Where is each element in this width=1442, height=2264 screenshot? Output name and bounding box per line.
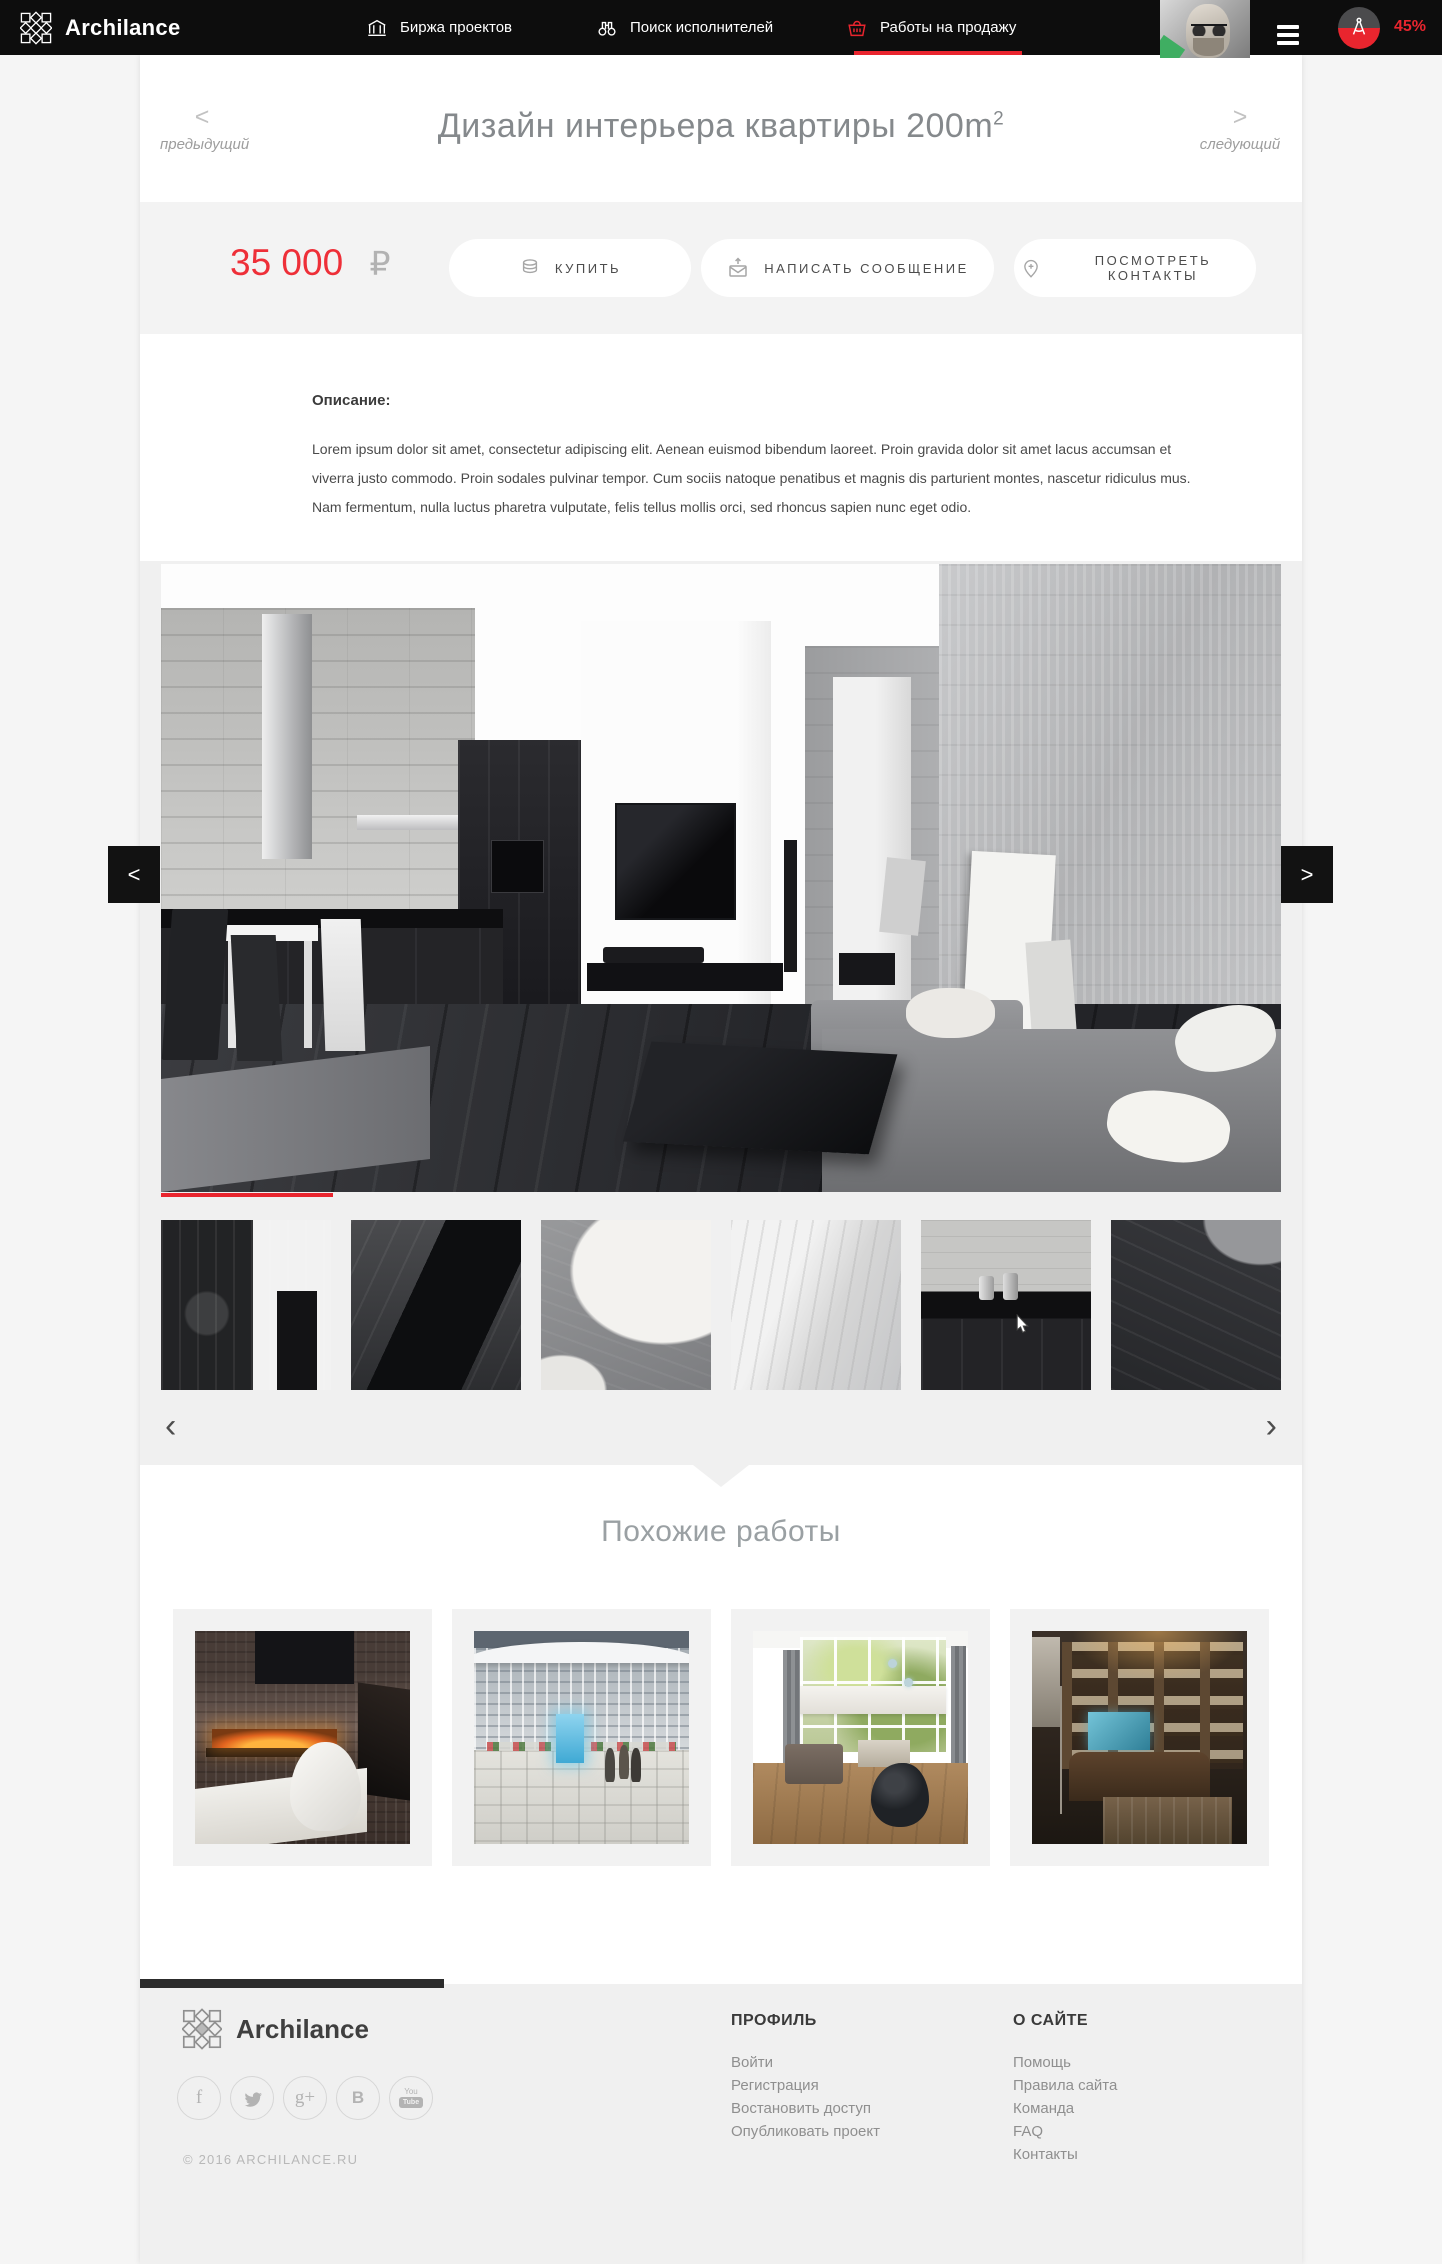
- copyright: © 2016 ARCHILANCE.RU: [183, 2152, 358, 2167]
- basket-icon: [846, 17, 868, 39]
- photo-hall-sideboard: [839, 953, 895, 984]
- page-title: Дизайн интерьера квартиры 200m2: [140, 55, 1302, 146]
- send-mail-icon: [726, 256, 750, 280]
- section-notch: [693, 1465, 749, 1487]
- chevron-left-icon: <: [160, 105, 244, 129]
- bank-icon: [366, 17, 388, 39]
- thumbnail-strip: [161, 1220, 1281, 1390]
- photo-speaker: [784, 840, 797, 972]
- description-label: Описание:: [312, 392, 1302, 409]
- footer-brand-logo-icon: [182, 2008, 222, 2050]
- photo-tv: [615, 803, 737, 920]
- footer-column-profile: ПРОФИЛЬ Войти Регистрация Востановить до…: [731, 2012, 880, 2147]
- card-bean-bag: [871, 1763, 929, 1827]
- next-work-label: следующий: [1198, 136, 1282, 153]
- photo-prev-button[interactable]: <: [108, 846, 160, 903]
- card-person: [605, 1748, 615, 1782]
- thumb-glass-jar: [1003, 1273, 1018, 1300]
- description-text: Lorem ipsum dolor sit amet, consectetur …: [312, 435, 1192, 522]
- footer-profile-heading: ПРОФИЛЬ: [731, 2012, 880, 2030]
- price-value: 35 000: [230, 242, 343, 283]
- footer-brand-logo[interactable]: Archilance: [182, 2008, 369, 2050]
- nav-item-label: Поиск исполнителей: [630, 19, 773, 36]
- photo-pillow: [906, 988, 996, 1038]
- previous-work-button[interactable]: < предыдущий: [160, 105, 244, 153]
- google-plus-icon[interactable]: g+: [283, 2076, 327, 2120]
- social-links: f g+ В YouTube: [177, 2076, 433, 2120]
- photo-dark-chair: [161, 909, 228, 1060]
- photo-tv-stand: [587, 963, 783, 991]
- photo-white-chair: [321, 919, 366, 1051]
- card-person: [619, 1745, 629, 1779]
- similar-photo-fireplace-lounge: [195, 1631, 410, 1844]
- similar-works-row: [173, 1609, 1269, 1866]
- brand-logo-icon: [20, 11, 52, 45]
- card-sofa: [785, 1744, 843, 1784]
- footer-link-help[interactable]: Помощь: [1013, 2055, 1117, 2070]
- thumbs-prev-button[interactable]: ‹: [165, 1409, 176, 1443]
- avatar-glasses: [1191, 24, 1227, 36]
- footer-about-heading: О САЙТЕ: [1013, 2012, 1117, 2030]
- footer-link-publish-project[interactable]: Опубликовать проект: [731, 2124, 880, 2139]
- card-console-table: [1103, 1797, 1232, 1844]
- vk-icon[interactable]: В: [336, 2076, 380, 2120]
- send-message-label: Написать сообщение: [764, 261, 969, 276]
- brand-name: Archilance: [65, 15, 181, 41]
- twitter-icon[interactable]: [230, 2076, 274, 2120]
- thumbnail-white-pillows[interactable]: [541, 1220, 711, 1390]
- buy-button-label: Купить: [555, 261, 621, 276]
- title-section: < предыдущий Дизайн интерьера квартиры 2…: [140, 55, 1302, 202]
- thumbnail-concrete-doorway[interactable]: [731, 1220, 901, 1390]
- footer-link-login[interactable]: Войти: [731, 2055, 880, 2070]
- description-section: Описание: Lorem ipsum dolor sit amet, co…: [140, 334, 1302, 561]
- view-contacts-label: Посмотреть контакты: [1056, 253, 1250, 283]
- top-navbar: Archilance Биржа проектов Поиск исполнит…: [0, 0, 1442, 55]
- footer-tab-indicator: [140, 1979, 444, 1988]
- similar-work-card-home-library[interactable]: [1010, 1609, 1269, 1866]
- card-tv-screen: [1088, 1712, 1150, 1750]
- card-glowing-sculpture: [556, 1714, 584, 1763]
- photo-tile-wall: [161, 608, 475, 916]
- footer-link-team[interactable]: Команда: [1013, 2101, 1117, 2116]
- send-message-button[interactable]: Написать сообщение: [701, 239, 994, 297]
- similar-work-card-fireplace-lounge[interactable]: [173, 1609, 432, 1866]
- thumbnail-sofa-and-floor[interactable]: [1111, 1220, 1281, 1390]
- thumbs-next-button[interactable]: ›: [1266, 1409, 1277, 1443]
- similar-photo-mall-atrium: [474, 1631, 689, 1844]
- footer: Archilance f g+ В YouTube © 2016 ARCHILA…: [140, 1984, 1302, 2264]
- card-person: [631, 1748, 641, 1782]
- card-leather-sofa: [1069, 1752, 1211, 1801]
- photo-coffee-table: [623, 1041, 898, 1154]
- binoculars-icon: [596, 17, 618, 39]
- card-pendant-lamp: [904, 1678, 913, 1687]
- next-work-button[interactable]: > следующий: [1198, 105, 1282, 153]
- card-tv: [255, 1631, 354, 1684]
- currency-symbol: ₽: [369, 245, 390, 282]
- footer-link-contacts[interactable]: Контакты: [1013, 2147, 1117, 2162]
- similar-works-section: Похожие работы: [140, 1465, 1302, 1984]
- user-avatar[interactable]: [1160, 0, 1250, 58]
- footer-brand-name: Archilance: [236, 2014, 369, 2045]
- photo-next-button[interactable]: >: [1281, 846, 1333, 903]
- card-floor-lamp: [1060, 1686, 1062, 1814]
- brand-logo[interactable]: Archilance: [20, 11, 181, 45]
- footer-link-restore-access[interactable]: Востановить доступ: [731, 2101, 880, 2116]
- nav-item-label: Работы на продажу: [880, 19, 1016, 36]
- profile-progress-badge[interactable]: [1338, 7, 1380, 49]
- avatar-background: [1160, 35, 1185, 58]
- thumb-glass-jar: [979, 1276, 994, 1300]
- photo-table-leg: [304, 941, 312, 1048]
- menu-toggle-button[interactable]: [1277, 25, 1299, 49]
- cursor-icon: [1016, 1314, 1031, 1335]
- location-pin-plus-icon: [1020, 257, 1042, 279]
- card-curtain: [951, 1646, 966, 1778]
- footer-column-about: О САЙТЕ Помощь Правила сайта Команда FAQ…: [1013, 2012, 1117, 2170]
- nav-item-find-performers[interactable]: Поиск исполнителей: [596, 0, 773, 55]
- card-canopy: [474, 1642, 689, 1663]
- youtube-icon[interactable]: YouTube: [389, 2076, 433, 2120]
- chevron-right-icon: >: [1198, 105, 1282, 129]
- price: 35 000 ₽: [230, 242, 390, 284]
- profile-progress-value: 45%: [1394, 18, 1426, 36]
- footer-link-faq[interactable]: FAQ: [1013, 2124, 1117, 2139]
- content-card: < предыдущий Дизайн интерьера квартиры 2…: [140, 55, 1302, 2264]
- previous-work-label: предыдущий: [160, 136, 244, 153]
- nav-item-project-exchange[interactable]: Биржа проектов: [366, 0, 512, 55]
- similar-photo-home-library: [1032, 1631, 1247, 1844]
- card-warm-light: [1049, 1631, 1247, 1699]
- nav-item-label: Биржа проектов: [400, 19, 512, 36]
- card-roman-shade: [800, 1686, 946, 1714]
- offer-section: 35 000 ₽ Купить Написать сообщение Посмо…: [140, 202, 1302, 334]
- photo-dark-chair: [231, 935, 282, 1061]
- facebook-icon[interactable]: f: [177, 2076, 221, 2120]
- thumbnail-kitchen-cabinet[interactable]: [161, 1220, 331, 1390]
- drafting-compass-icon: [1348, 16, 1370, 40]
- thumb-door-detail: [277, 1291, 318, 1390]
- coins-icon: [519, 257, 541, 279]
- similar-photo-bright-living-room: [753, 1631, 968, 1844]
- gallery-progress-bar: [161, 1193, 333, 1197]
- footer-link-register[interactable]: Регистрация: [731, 2078, 880, 2093]
- avatar-beard: [1193, 38, 1224, 56]
- photo-oven: [491, 840, 543, 892]
- buy-button[interactable]: Купить: [449, 239, 691, 297]
- main-photo: [161, 564, 1281, 1192]
- similar-work-card-mall-atrium[interactable]: [452, 1609, 711, 1866]
- photo-soundbar: [603, 947, 704, 963]
- card-marble-floor: [474, 1750, 689, 1844]
- nav-item-works-for-sale[interactable]: Работы на продажу: [846, 0, 1016, 55]
- photo-range-hood: [262, 614, 312, 859]
- photo-shelf: [357, 815, 469, 830]
- similar-work-card-bright-living-room[interactable]: [731, 1609, 990, 1866]
- footer-link-site-rules[interactable]: Правила сайта: [1013, 2078, 1117, 2093]
- gallery-section: < > ‹ ›: [140, 561, 1302, 1465]
- thumbnail-black-coffee-table[interactable]: [351, 1220, 521, 1390]
- view-contacts-button[interactable]: Посмотреть контакты: [1014, 239, 1256, 297]
- thumbnail-kitchen-counter[interactable]: [921, 1220, 1091, 1390]
